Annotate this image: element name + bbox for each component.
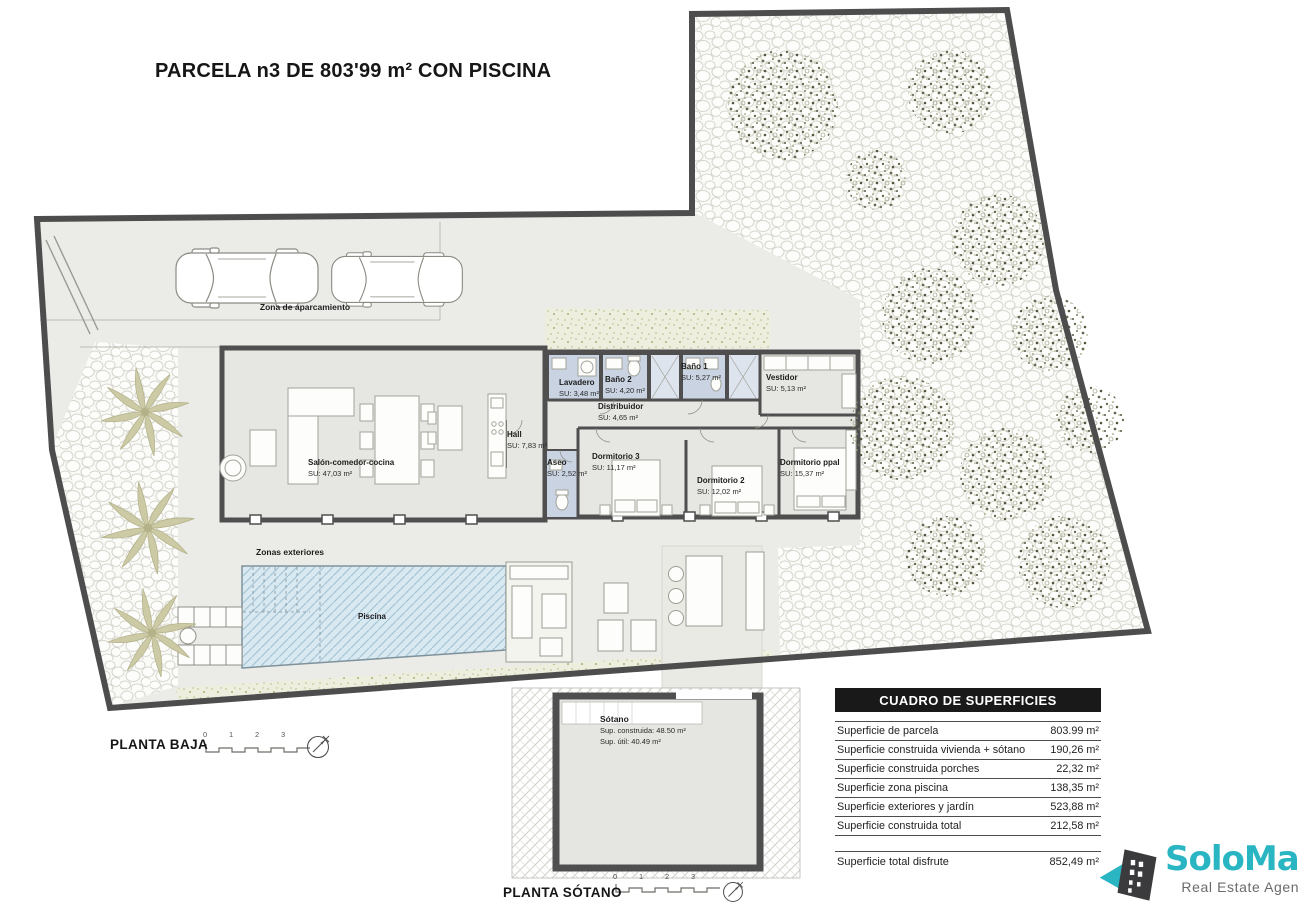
scale-bar-basement [616,884,720,892]
table-row-value: 523,88 m² [1044,801,1099,813]
scale-tick: 0 [613,872,639,881]
table-row-value: 212,58 m² [1044,820,1099,832]
table-row: Superficie construida porches22,32 m² [835,760,1101,779]
parking-zone-label: Zona de aparcamiento [230,302,380,312]
ground-floor-caption: PLANTA BAJA [110,737,208,752]
scale-tick: 2 [665,872,691,881]
scale-tick: 0 [203,730,229,739]
table-row: Superficie construida total212,58 m² [835,817,1101,836]
table-row: Superficie construida vivienda + sótano1… [835,741,1101,760]
table-row-value: 803.99 m² [1044,725,1099,737]
scale-bar-ground [206,744,310,752]
table-row-label: Superficie construida total [837,820,961,832]
basement-name: Sótano [600,714,686,726]
north-arrow-basement [724,882,743,901]
basement-usable-area: Sup. útil: 40.49 m² [600,737,686,748]
car-1 [176,248,318,308]
room-name: Baño 1 [681,362,721,373]
surface-table: CUADRO DE SUPERFICIES Superficie de parc… [835,688,1101,872]
room-label-distribuidor: Distribuidor SU: 4,65 m² [598,402,643,422]
room-label-salon: Salón-comedor-cocina SU: 47,03 m² [308,458,394,478]
basement-scale-ticks: 0123 [613,872,717,881]
room-name: Hall [507,430,547,441]
floor-plan-page: PARCELA n3 DE 803'99 m² CON PISCINA Zona… [0,0,1300,919]
room-area: SU: 47,03 m² [308,469,394,478]
room-area: SU: 2,52 m² [547,469,587,478]
scale-tick: 2 [255,730,281,739]
table-row-label: Superficie construida vivienda + sótano [837,744,1025,756]
surface-table-total-row: Superficie total disfrute 852,49 m² [835,851,1101,872]
surface-table-rows: Superficie de parcela803.99 m²Superficie… [835,721,1101,836]
agency-logo: SoloMar Real Estate Agency [1098,842,1300,908]
table-row: Superficie zona piscina138,35 m² [835,779,1101,798]
logo-wordmark: SoloMar [1165,842,1300,878]
room-area: SU: 5,13 m² [766,384,806,393]
pool-label: Piscina [332,612,412,621]
table-row-label: Superficie zona piscina [837,782,948,794]
room-label-lavadero: Lavadero SU: 3,48 m² [559,378,599,398]
basement-label-block: Sótano Sup. construida: 48.50 m² Sup. út… [600,714,686,748]
car-2 [332,252,463,307]
room-label-dormitorio3: Dormitorio 3 SU: 11,17 m² [592,452,640,472]
room-area: SU: 4,20 m² [605,386,645,395]
room-name: Baño 2 [605,375,645,386]
room-area: SU: 7,83 m² [507,441,547,450]
table-row-value: 138,35 m² [1044,782,1099,794]
room-name: Dormitorio ppal [780,458,840,469]
room-label-dormitorio-ppal: Dormitorio ppal SU: 15,37 m² [780,458,840,478]
room-label-bano2: Baño 2 SU: 4,20 m² [605,375,645,395]
room-name: Dormitorio 2 [697,476,745,487]
room-area: SU: 12,02 m² [697,487,745,496]
room-name: Distribuidor [598,402,643,413]
north-arrow-ground [308,736,330,758]
room-name: Dormitorio 3 [592,452,640,463]
room-name: Vestidor [766,373,806,384]
room-label-vestidor: Vestidor SU: 5,13 m² [766,373,806,393]
basement-built-area: Sup. construida: 48.50 m² [600,726,686,737]
room-label-aseo: Aseo SU: 2,52 m² [547,458,587,478]
scale-tick: 1 [639,872,665,881]
room-label-hall: Hall SU: 7,83 m² [507,430,547,450]
room-name: Aseo [547,458,587,469]
basement-floor-caption: PLANTA SÓTANO [503,885,622,900]
ground-scale-ticks: 0123 [203,730,307,739]
table-row-value: 190,26 m² [1044,744,1099,756]
lawn-strip-top [545,308,770,350]
logo-tagline: Real Estate Agency [1165,879,1300,895]
scale-tick: 1 [229,730,255,739]
logo-text: SoloMar Real Estate Agency [1165,842,1300,895]
room-area: SU: 3,48 m² [559,389,599,398]
table-row-label: Superficie construida porches [837,763,979,775]
surface-table-header: CUADRO DE SUPERFICIES [835,688,1101,712]
table-row-label: Superficie de parcela [837,725,938,737]
room-area: SU: 5,27 m² [681,373,721,382]
room-label-dormitorio2: Dormitorio 2 SU: 12,02 m² [697,476,745,496]
room-area: SU: 15,37 m² [780,469,840,478]
logo-building-icon [1098,842,1160,908]
scale-tick: 3 [691,872,717,881]
total-value: 852,49 m² [1049,856,1099,868]
room-area: SU: 11,17 m² [592,463,640,472]
table-row: Superficie de parcela803.99 m² [835,722,1101,741]
room-area: SU: 4,65 m² [598,413,643,422]
table-row-value: 22,32 m² [1050,763,1099,775]
total-label: Superficie total disfrute [837,856,949,868]
scale-tick: 3 [281,730,307,739]
exterior-zone-label: Zonas exteriores [256,547,324,557]
table-row-label: Superficie exteriores y jardín [837,801,974,813]
room-name: Lavadero [559,378,599,389]
room-label-bano1: Baño 1 SU: 5,27 m² [681,362,721,382]
table-row: Superficie exteriores y jardín523,88 m² [835,798,1101,817]
site-plan-drawing [0,0,1300,919]
page-title: PARCELA n3 DE 803'99 m² CON PISCINA [155,60,551,83]
room-name: Salón-comedor-cocina [308,458,394,469]
